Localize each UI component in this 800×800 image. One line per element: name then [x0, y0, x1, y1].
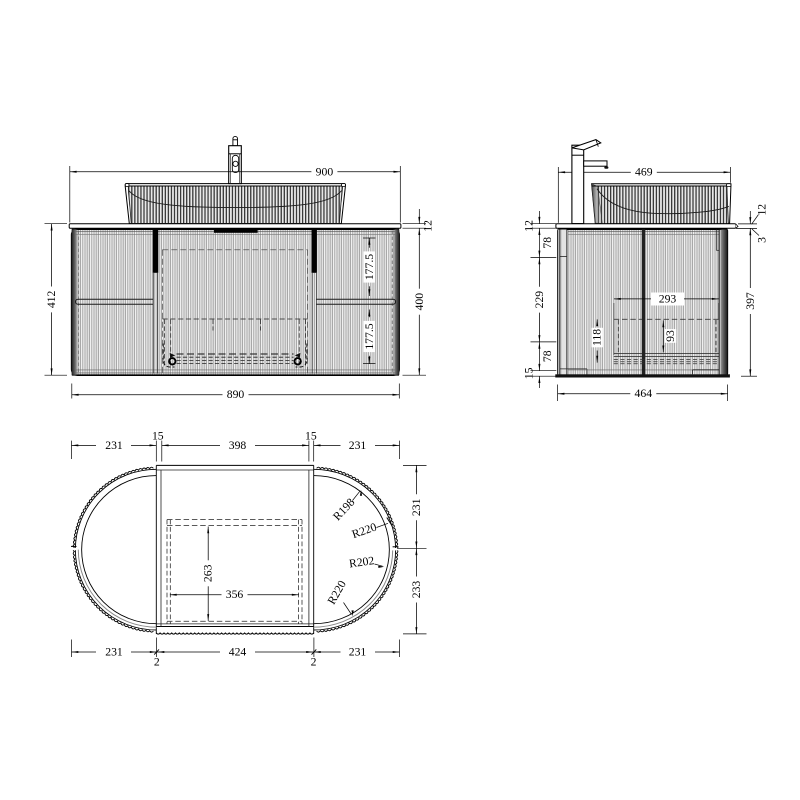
- svg-text:356: 356: [226, 588, 244, 601]
- svg-text:12: 12: [421, 220, 434, 232]
- svg-text:890: 890: [227, 388, 245, 401]
- svg-text:15: 15: [305, 429, 317, 442]
- svg-text:15: 15: [152, 429, 164, 442]
- svg-text:231: 231: [410, 498, 423, 516]
- svg-text:2: 2: [311, 655, 317, 668]
- svg-text:3: 3: [756, 237, 769, 243]
- svg-text:469: 469: [635, 166, 653, 179]
- svg-text:231: 231: [349, 439, 367, 452]
- svg-text:177.5: 177.5: [363, 323, 376, 349]
- svg-text:78: 78: [541, 350, 554, 362]
- svg-text:424: 424: [229, 646, 247, 659]
- svg-text:231: 231: [105, 646, 123, 659]
- svg-text:293: 293: [659, 292, 677, 305]
- svg-text:231: 231: [349, 646, 367, 659]
- svg-text:177.5: 177.5: [363, 254, 376, 280]
- svg-text:398: 398: [229, 439, 247, 452]
- svg-text:12: 12: [523, 220, 536, 232]
- svg-text:464: 464: [635, 387, 653, 400]
- svg-text:412: 412: [45, 290, 58, 308]
- svg-text:233: 233: [410, 581, 423, 599]
- svg-text:15: 15: [523, 367, 536, 379]
- svg-text:900: 900: [316, 165, 334, 178]
- svg-text:78: 78: [541, 237, 554, 249]
- svg-text:118: 118: [591, 329, 604, 346]
- svg-text:2: 2: [154, 655, 160, 668]
- svg-text:400: 400: [413, 293, 426, 311]
- svg-text:229: 229: [533, 291, 546, 309]
- svg-text:231: 231: [105, 439, 123, 452]
- svg-text:397: 397: [744, 292, 757, 310]
- svg-text:12: 12: [755, 204, 768, 216]
- svg-text:263: 263: [202, 564, 215, 582]
- svg-text:93: 93: [664, 330, 677, 342]
